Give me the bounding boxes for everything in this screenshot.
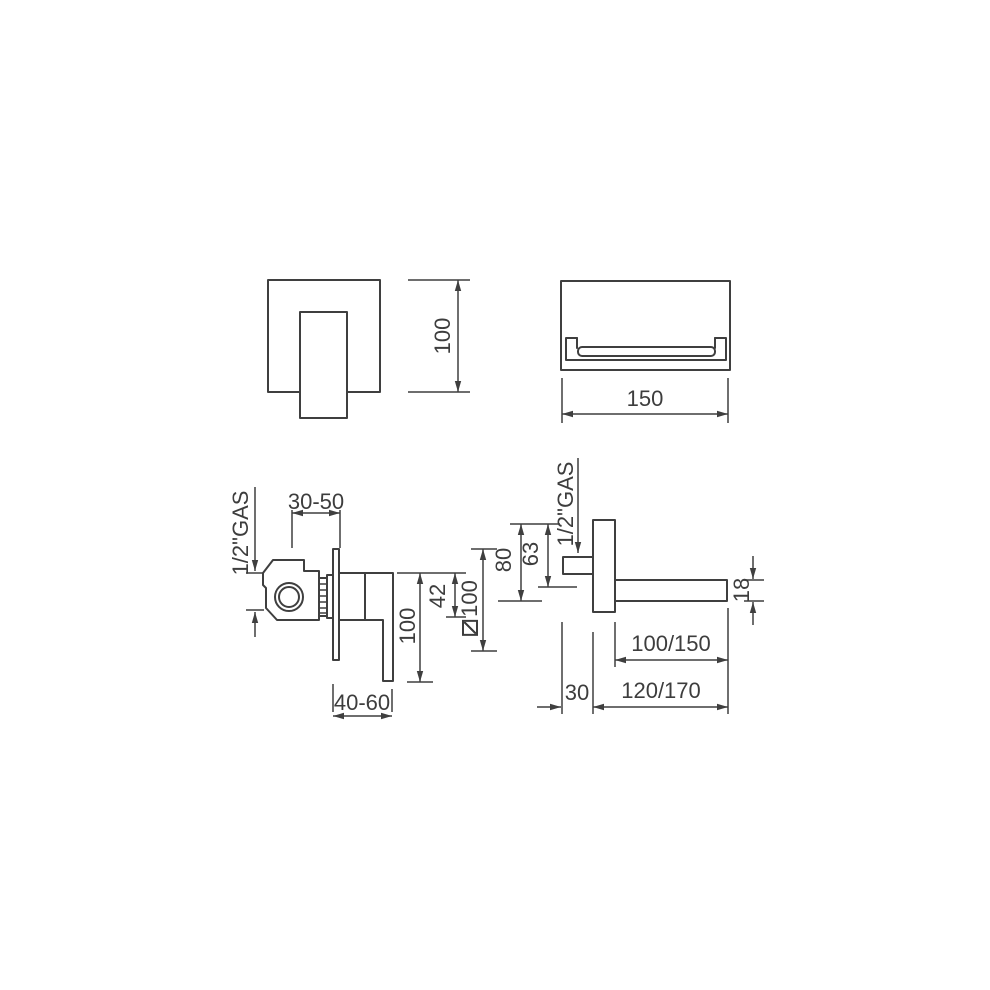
square-section-icon	[462, 620, 478, 636]
technical-drawing-page: 100 150 30-50 1/2"GAS 100 42 100 40-60 8…	[0, 0, 990, 990]
dim-label-spout-plate-height: 80	[493, 548, 515, 572]
dim-label-spout-inlet-thread: 1/2"GAS	[555, 462, 577, 547]
dim-label-spout-width: 150	[627, 388, 664, 410]
dim-label-cartridge-height: 42	[427, 584, 449, 608]
dim-label-mixer-inlet-thread: 1/2"GAS	[230, 491, 252, 576]
dim-label-spout-thickness: 18	[731, 578, 753, 602]
dim-label-handle-length: 100	[397, 608, 419, 645]
dim-label-handle-clearance: 40-60	[334, 692, 390, 714]
dim-label-mixer-plate-size: 100	[459, 580, 481, 636]
dim-label-inlet-depth: 30	[565, 682, 589, 704]
dim-label-mixer-plate-size-value: 100	[459, 580, 481, 617]
dim-label-spout-projection: 100/150	[631, 633, 711, 655]
spout-side-view	[498, 458, 764, 714]
drawing-linework	[0, 0, 990, 990]
dim-label-mixer-front-height: 100	[432, 318, 454, 355]
dim-label-total-projection: 120/170	[621, 680, 701, 702]
dim-label-inlet-offset: 63	[520, 542, 542, 566]
dim-label-rough-in-depth: 30-50	[288, 491, 344, 513]
